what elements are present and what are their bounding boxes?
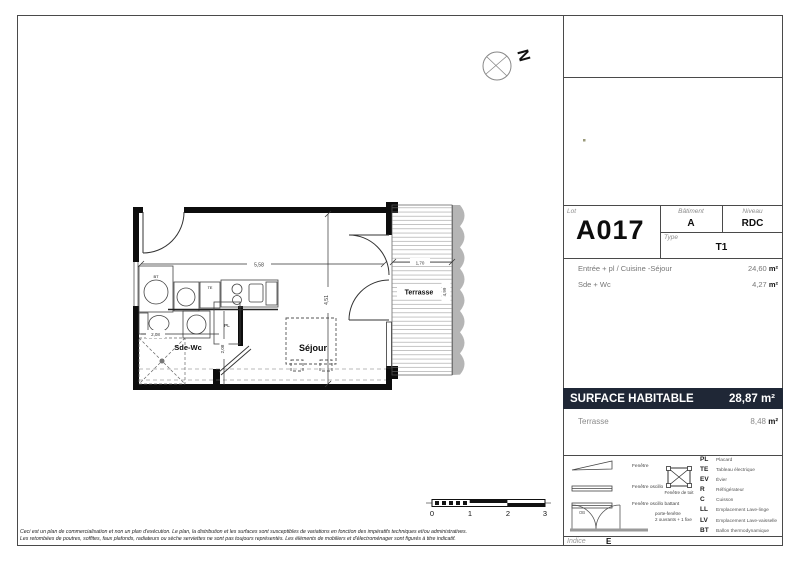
surface-habitable-value: 28,87 — [729, 393, 758, 405]
legend-abbr-row: LL Emplacement Lave-linge — [700, 506, 783, 516]
legend-window-label: Fenêtre — [632, 464, 649, 469]
area-row-value: 4,27 — [752, 280, 767, 289]
scale-bar: 0 1 2 3 — [426, 500, 551, 519]
dim-sde-width: 2,08 — [151, 332, 160, 337]
legend-abbr-row: C Cuisson — [700, 496, 783, 506]
area-row-unit: m² — [769, 280, 778, 289]
surface-habitable-unit: m² — [761, 393, 775, 405]
indice-value: E — [606, 537, 611, 546]
indice-label: Indice — [567, 538, 586, 545]
legend-abbr-row: LV Emplacement Lave-vaisselle — [700, 517, 783, 527]
area-row-main: Entrée + pl / Cuisine -Séjour 24,60 m² — [578, 264, 778, 273]
legend-french-door-label: porte-fenêtre 2 ouvrants + 1 fixe — [655, 511, 692, 523]
roof-window-symbol — [667, 467, 692, 488]
area-row-sde: Sde + Wc 4,27 m² — [578, 280, 778, 289]
disclaimer-line2: Les retombées de poutres, soffites, faux… — [20, 536, 558, 543]
bathroom-window — [134, 262, 138, 306]
fixture-label-bt: BT — [153, 274, 159, 279]
scale-2: 2 — [506, 509, 510, 518]
area-row-label: Entrée + pl / Cuisine -Séjour — [578, 264, 672, 273]
dim-width: 5,58 — [254, 263, 264, 269]
legend-abbr-row: TE Tableau électrique — [700, 466, 783, 476]
lot-label: Lot — [567, 208, 576, 215]
batiment-label: Bâtiment — [660, 208, 722, 215]
dim-terrasse-width: 1,70 — [416, 261, 425, 266]
terrasse-area-label: Terrasse — [578, 417, 609, 426]
shower-drain — [160, 359, 165, 364]
scale-0: 0 — [430, 509, 434, 518]
legend-abbr-row: PL Placard — [700, 456, 783, 466]
lot-number: A017 — [576, 215, 645, 246]
terrace-edge-band — [452, 205, 465, 375]
terrasse-area-value: 8,48 — [750, 417, 766, 426]
window-symbol — [572, 461, 612, 470]
dim-height: 4,51 — [324, 295, 330, 305]
overhead-dashed-lines — [139, 369, 386, 380]
kitchen-counter — [221, 280, 278, 307]
disclaimer: Ceci est un plan de commercialisation et… — [20, 529, 558, 543]
dim-terrasse-height: 4,99 — [442, 287, 447, 296]
floor-plan-sheet: N — [0, 0, 800, 566]
type-label: Type — [664, 234, 678, 241]
terrasse-area-row: Terrasse 8,48 m² — [578, 417, 778, 426]
room-label-sejour: Séjour — [299, 343, 328, 353]
north-label: N — [513, 48, 532, 64]
compass: N — [483, 48, 533, 80]
apartment-walls — [134, 207, 389, 390]
area-row-value: 24,60 — [748, 264, 767, 273]
surface-habitable-bar: SURFACE HABITABLE 28,87 m² — [563, 388, 783, 409]
legend-roof-window-label: Fenêtre de toit — [655, 490, 703, 495]
scale-1: 1 — [468, 509, 472, 518]
surface-habitable-label: SURFACE HABITABLE — [570, 393, 694, 405]
room-label-sde-wc: Sde-Wc — [174, 343, 202, 352]
room-label-terrasse: Terrasse — [405, 290, 434, 297]
entry-door — [143, 212, 184, 253]
water-heater — [139, 266, 173, 312]
legend-oscillo-battant-label: Fenêtre oscillo battant — [632, 502, 679, 507]
batiment-value: A — [660, 218, 722, 229]
oscillo-battant-tag: OB — [579, 510, 585, 515]
legend-abbreviations: PL Placard TE Tableau électrique EV Évie… — [700, 456, 783, 537]
fixture-label-te: TE — [208, 286, 213, 290]
area-row-label: Sde + Wc — [578, 280, 611, 289]
disclaimer-line1: Ceci est un plan de commercialisation et… — [20, 529, 558, 536]
legend-abbr-row: R Réfrigérateur — [700, 486, 783, 496]
french-door-symbol — [570, 505, 648, 532]
niveau-label: Niveau — [722, 208, 783, 215]
washbasin — [174, 282, 199, 311]
area-row-unit: m² — [769, 264, 778, 273]
niveau-value: RDC — [722, 218, 783, 229]
scale-3: 3 — [543, 509, 547, 518]
french-door-label-line2: 2 ouvrants + 1 fixe — [655, 517, 692, 523]
legend-abbr-row: BT Ballon thermodynamique — [700, 527, 783, 537]
legend-abbr-row: EV Évier — [700, 476, 783, 486]
fixture-label-pl: PL — [224, 323, 230, 328]
terrasse-area-unit: m² — [768, 417, 778, 426]
logo-dot — [583, 139, 586, 142]
window-oscillo-symbol — [572, 486, 612, 491]
terrace-french-doors — [349, 235, 392, 368]
type-value: T1 — [660, 242, 783, 253]
dim-sde-height: 2,08 — [220, 344, 225, 353]
